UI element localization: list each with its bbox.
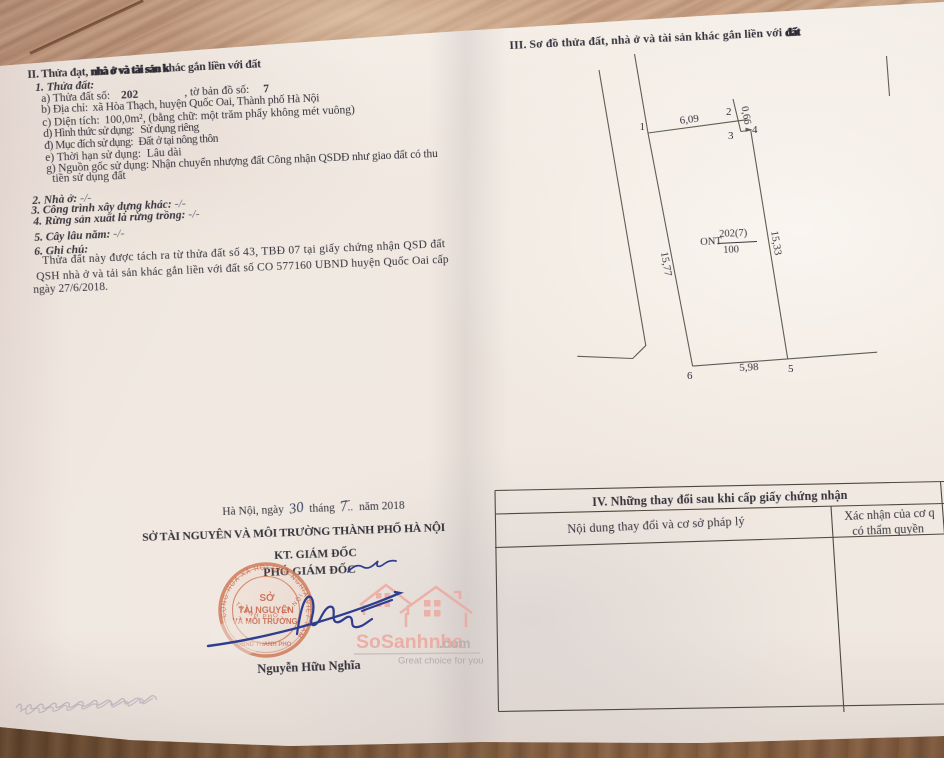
svg-text:SỞ: SỞ [259, 591, 275, 604]
svg-text:TÀI NGUYÊN: TÀI NGUYÊN [238, 604, 294, 615]
